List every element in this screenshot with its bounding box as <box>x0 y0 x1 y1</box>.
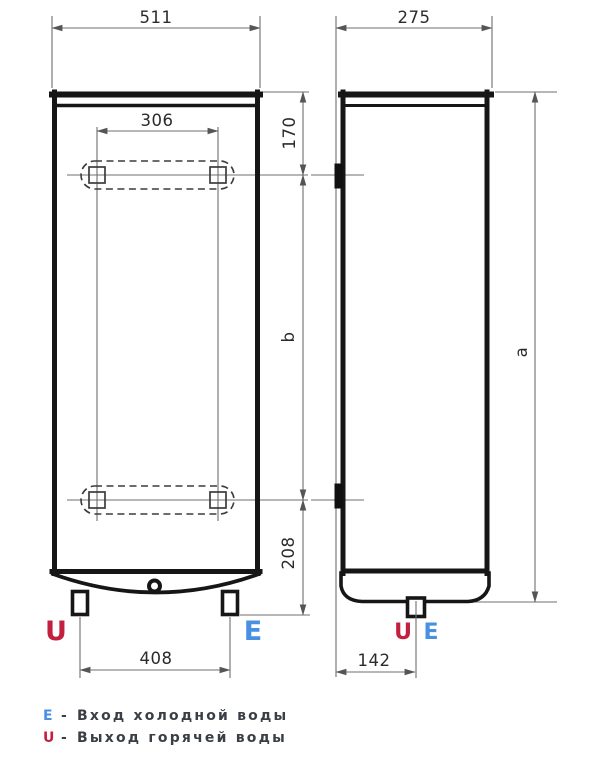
dim-label-170: 170 <box>280 117 299 150</box>
technical-drawing-svg: 511 275 306 170 b 208 a 408 142 U E U E <box>0 0 605 762</box>
legend-label-cold-inlet: Вход холодной воды <box>77 705 288 727</box>
legend-dash: - <box>61 727 69 749</box>
front-body-outline <box>52 92 260 615</box>
dim-label-408: 408 <box>140 649 173 668</box>
dim-label-142: 142 <box>358 651 391 670</box>
side-body-outline <box>341 92 491 617</box>
extension-lines <box>52 16 557 678</box>
dim-label-511: 511 <box>140 8 173 27</box>
side-inlet-label-E: E <box>423 620 438 645</box>
dim-label-275: 275 <box>398 8 431 27</box>
legend-label-hot-outlet: Выход горячей воды <box>77 727 287 749</box>
front-view <box>52 92 260 615</box>
front-foot-left <box>73 592 88 615</box>
front-inlet-label-E: E <box>244 616 262 647</box>
legend-row-hot-outlet: U - Выход горячей воды <box>43 727 288 749</box>
side-view <box>335 92 492 678</box>
legend-symbol-E: E <box>43 705 59 727</box>
port-labels: U E U E <box>45 616 438 647</box>
wall-mount-tab-lower <box>335 484 344 509</box>
front-outlet-label-U: U <box>45 616 67 647</box>
water-heater-dimension-drawing: 511 275 306 170 b 208 a 408 142 U E U E … <box>0 0 605 762</box>
dim-label-a: a <box>512 347 531 358</box>
dim-label-208: 208 <box>279 537 298 570</box>
legend-dash: - <box>61 705 69 727</box>
front-foot-right <box>223 592 238 615</box>
legend-symbol-U: U <box>43 727 59 749</box>
legend: E - Вход холодной воды U - Выход горячей… <box>43 705 288 749</box>
side-outlet-label-U: U <box>394 620 412 645</box>
dim-label-b: b <box>279 332 298 343</box>
dim-label-306: 306 <box>141 111 174 130</box>
wall-mount-tab-upper <box>335 164 344 189</box>
legend-row-cold-inlet: E - Вход холодной воды <box>43 705 288 727</box>
drain-hole <box>149 581 160 592</box>
